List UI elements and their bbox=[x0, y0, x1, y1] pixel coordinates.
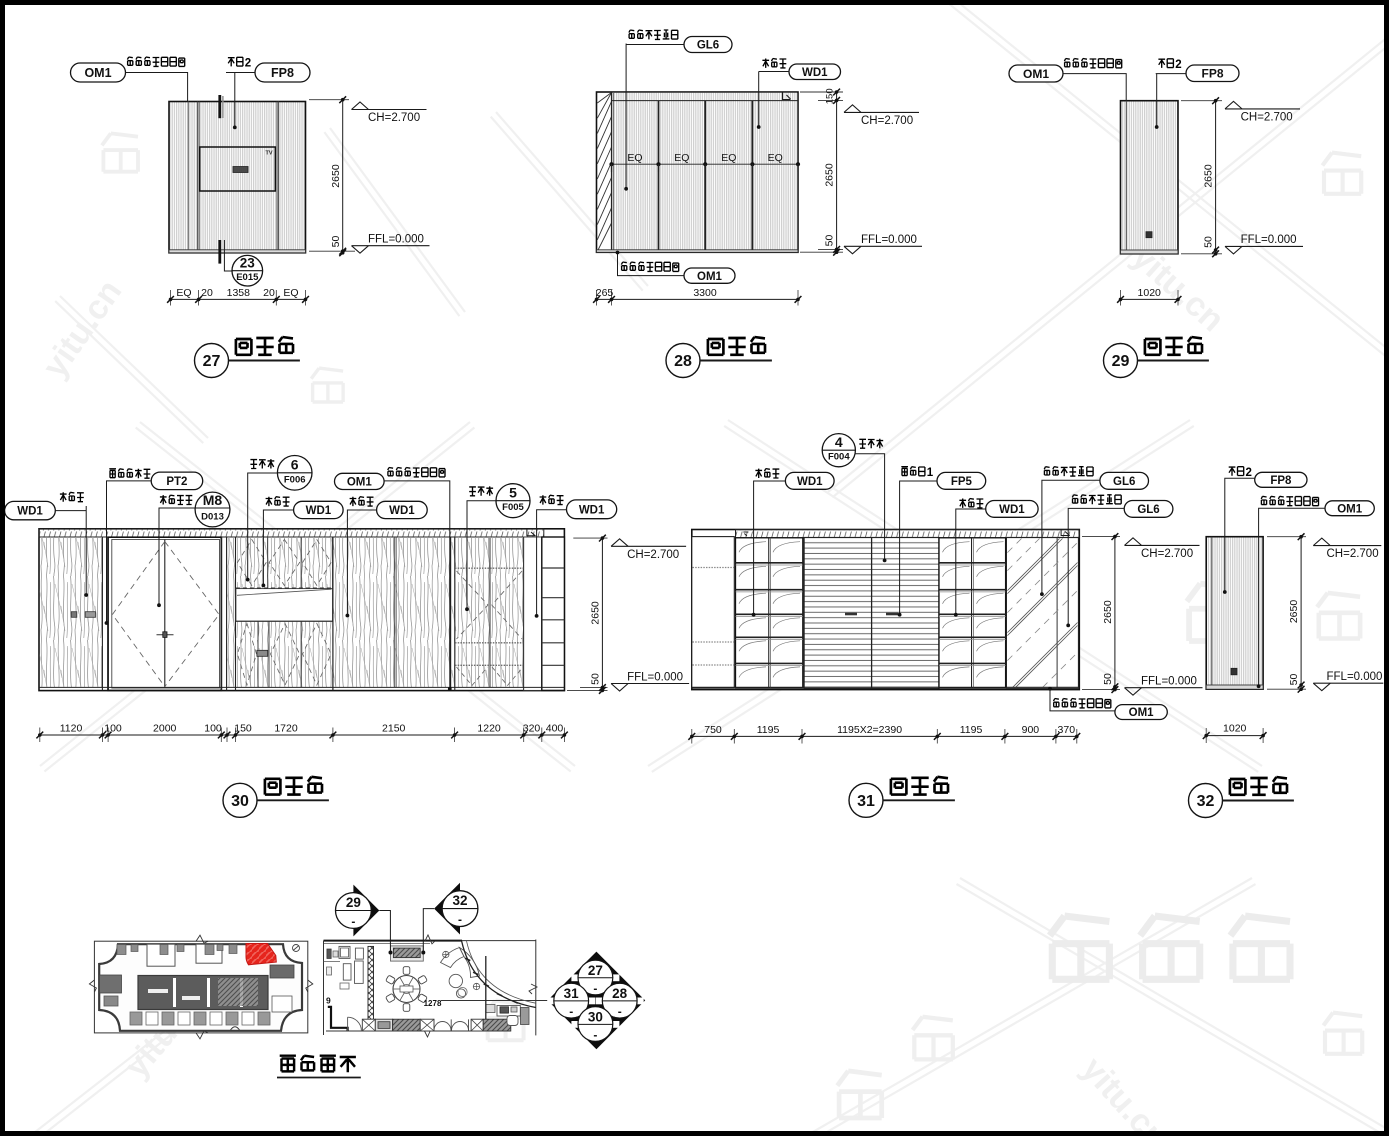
svg-text:1358: 1358 bbox=[227, 287, 251, 299]
svg-text:1: 1 bbox=[927, 467, 934, 479]
svg-text:CH=2.700: CH=2.700 bbox=[1141, 548, 1193, 560]
svg-text:1020: 1020 bbox=[1138, 287, 1162, 299]
svg-text:6: 6 bbox=[291, 457, 299, 473]
svg-text:32: 32 bbox=[452, 893, 467, 908]
svg-text:OM1: OM1 bbox=[1023, 67, 1049, 81]
svg-text:400: 400 bbox=[546, 723, 564, 735]
svg-text:4: 4 bbox=[835, 434, 843, 450]
svg-text:150: 150 bbox=[825, 88, 836, 104]
svg-text:-: - bbox=[593, 1028, 597, 1042]
svg-text:CH=2.700: CH=2.700 bbox=[1327, 548, 1379, 560]
svg-text:2650: 2650 bbox=[1102, 600, 1114, 624]
svg-text:OM1: OM1 bbox=[84, 66, 111, 80]
svg-text:27: 27 bbox=[203, 353, 221, 370]
svg-text:150: 150 bbox=[234, 723, 252, 735]
svg-text:WD1: WD1 bbox=[306, 505, 332, 517]
svg-text:WD1: WD1 bbox=[802, 67, 828, 79]
svg-text:2000: 2000 bbox=[153, 723, 177, 735]
svg-text:FFL=0.000: FFL=0.000 bbox=[1241, 234, 1297, 246]
svg-text:1220: 1220 bbox=[477, 723, 501, 735]
svg-text:EQ: EQ bbox=[721, 152, 736, 164]
svg-text:320: 320 bbox=[523, 723, 541, 735]
svg-text:TV: TV bbox=[265, 151, 272, 157]
svg-text:M8: M8 bbox=[203, 492, 223, 508]
svg-text:FFL=0.000: FFL=0.000 bbox=[627, 671, 683, 683]
svg-text:20: 20 bbox=[201, 287, 213, 299]
svg-text:2150: 2150 bbox=[382, 723, 406, 735]
svg-text:1720: 1720 bbox=[274, 723, 298, 735]
svg-text:CH=2.700: CH=2.700 bbox=[368, 112, 420, 124]
svg-text:D013: D013 bbox=[201, 512, 224, 523]
svg-text:WD1: WD1 bbox=[389, 505, 415, 517]
svg-text:FFL=0.000: FFL=0.000 bbox=[368, 234, 424, 246]
svg-text:FP8: FP8 bbox=[271, 66, 294, 80]
svg-text:100: 100 bbox=[104, 723, 122, 735]
svg-text:2650: 2650 bbox=[1203, 164, 1215, 188]
svg-text:9: 9 bbox=[326, 996, 331, 1006]
svg-text:27: 27 bbox=[588, 963, 603, 978]
svg-text:50: 50 bbox=[330, 236, 342, 248]
svg-text:2: 2 bbox=[1175, 59, 1181, 71]
svg-text:OM1: OM1 bbox=[347, 477, 373, 489]
svg-text:GL6: GL6 bbox=[1137, 504, 1159, 516]
svg-text:CH=2.700: CH=2.700 bbox=[861, 115, 913, 127]
svg-text:FP8: FP8 bbox=[1270, 475, 1292, 487]
svg-text:30: 30 bbox=[588, 1009, 603, 1024]
svg-text:EQ: EQ bbox=[283, 287, 298, 299]
svg-text:CH=2.700: CH=2.700 bbox=[627, 549, 679, 561]
svg-text:900: 900 bbox=[1022, 724, 1040, 736]
svg-text:1195X2=2390: 1195X2=2390 bbox=[837, 724, 902, 736]
svg-text:FFL=0.000: FFL=0.000 bbox=[1141, 676, 1197, 688]
svg-text:FFL=0.000: FFL=0.000 bbox=[1327, 671, 1383, 683]
svg-text:2650: 2650 bbox=[1288, 600, 1300, 624]
svg-text:CH=2.700: CH=2.700 bbox=[1241, 111, 1293, 123]
svg-text:-: - bbox=[351, 915, 355, 929]
svg-text:30: 30 bbox=[231, 793, 249, 810]
svg-text:EQ: EQ bbox=[768, 152, 783, 164]
svg-text:FP8: FP8 bbox=[1201, 67, 1223, 81]
svg-text:-: - bbox=[618, 1004, 622, 1018]
svg-text:31: 31 bbox=[564, 986, 580, 1001]
svg-text:OM1: OM1 bbox=[1337, 503, 1363, 515]
svg-text:F004: F004 bbox=[828, 452, 850, 463]
svg-text:E015: E015 bbox=[236, 272, 259, 283]
svg-text:20: 20 bbox=[263, 287, 275, 299]
svg-text:23: 23 bbox=[240, 256, 256, 271]
svg-text:31: 31 bbox=[857, 793, 875, 810]
svg-text:1278: 1278 bbox=[424, 999, 442, 1008]
svg-text:2650: 2650 bbox=[590, 601, 602, 625]
svg-text:50: 50 bbox=[1288, 674, 1300, 686]
svg-text:WD1: WD1 bbox=[797, 476, 823, 488]
svg-text:3300: 3300 bbox=[693, 287, 717, 299]
svg-text:1120: 1120 bbox=[60, 723, 83, 735]
svg-text:2650: 2650 bbox=[330, 164, 342, 188]
svg-text:1020: 1020 bbox=[1223, 723, 1247, 735]
svg-text:50: 50 bbox=[1102, 673, 1114, 685]
svg-text:50: 50 bbox=[824, 235, 836, 247]
svg-text:50: 50 bbox=[590, 673, 602, 685]
svg-text:2: 2 bbox=[1246, 467, 1252, 479]
svg-text:-: - bbox=[569, 1004, 573, 1018]
svg-text:750: 750 bbox=[704, 724, 722, 736]
svg-text:32: 32 bbox=[1197, 793, 1215, 810]
svg-text:EQ: EQ bbox=[627, 152, 642, 164]
svg-text:F005: F005 bbox=[502, 502, 524, 513]
svg-text:FFL=0.000: FFL=0.000 bbox=[861, 234, 917, 246]
svg-text:GL6: GL6 bbox=[697, 40, 719, 52]
svg-text:-: - bbox=[458, 913, 462, 927]
svg-text:F006: F006 bbox=[284, 474, 306, 485]
svg-text:370: 370 bbox=[1058, 724, 1076, 736]
svg-text:OM1: OM1 bbox=[1129, 707, 1155, 719]
svg-text:28: 28 bbox=[674, 353, 692, 370]
svg-text:2650: 2650 bbox=[824, 163, 836, 187]
svg-text:1195: 1195 bbox=[960, 724, 983, 736]
svg-text:OM1: OM1 bbox=[697, 271, 723, 283]
svg-text:FP5: FP5 bbox=[951, 476, 973, 488]
svg-text:EQ: EQ bbox=[674, 152, 689, 164]
svg-text:WD1: WD1 bbox=[17, 506, 43, 518]
svg-text:28: 28 bbox=[612, 986, 628, 1001]
svg-text:50: 50 bbox=[1203, 236, 1215, 248]
svg-text:29: 29 bbox=[346, 895, 361, 910]
svg-text:-: - bbox=[593, 981, 597, 995]
svg-text:EQ: EQ bbox=[176, 287, 191, 299]
svg-text:WD1: WD1 bbox=[999, 504, 1025, 516]
svg-text:1195: 1195 bbox=[757, 724, 780, 736]
svg-text:100: 100 bbox=[204, 723, 222, 735]
svg-text:2: 2 bbox=[245, 57, 251, 69]
svg-text:5: 5 bbox=[509, 485, 517, 501]
svg-text:29: 29 bbox=[1112, 353, 1130, 370]
svg-text:WD1: WD1 bbox=[579, 504, 605, 516]
svg-text:PT2: PT2 bbox=[166, 476, 187, 488]
svg-text:GL6: GL6 bbox=[1113, 476, 1135, 488]
svg-text:265: 265 bbox=[596, 287, 614, 299]
